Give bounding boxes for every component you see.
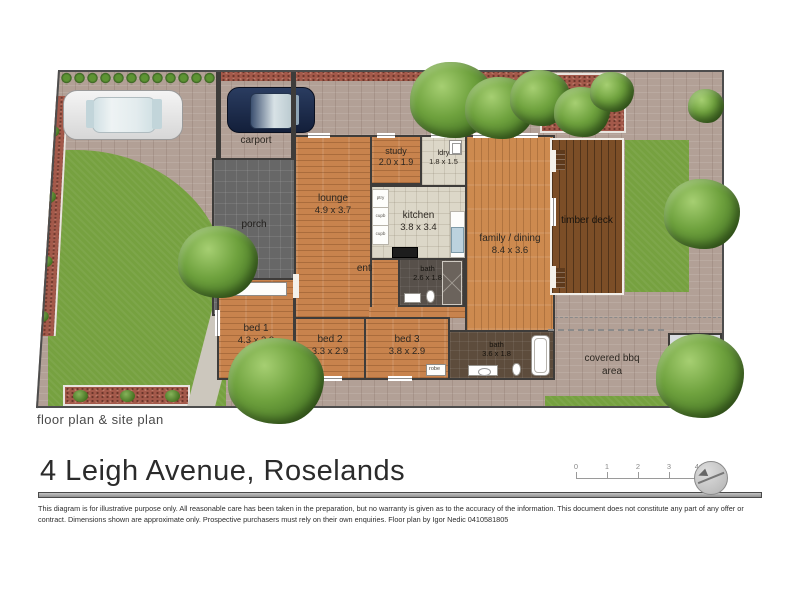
window-icon <box>431 133 447 138</box>
window-icon <box>308 133 330 138</box>
car-driveway <box>63 90 183 140</box>
bathtub-icon <box>531 335 550 376</box>
room-bed2: bed 2 3.3 x 2.9 robe <box>294 317 366 380</box>
window-icon <box>473 133 499 138</box>
basin-icon <box>404 293 421 303</box>
plan-caption: floor plan & site plan <box>37 412 164 427</box>
boundary-top <box>58 70 724 72</box>
room-family-dining: family / dining 8.4 x 3.6 <box>465 135 555 332</box>
robe-cabinet: robe <box>426 364 446 376</box>
garden-bed-top-right <box>540 73 626 133</box>
car-windshield <box>152 99 162 129</box>
rear-lawn <box>625 140 689 292</box>
room-label: bed 3 3.8 x 2.9 <box>366 333 448 358</box>
window-icon <box>236 376 262 381</box>
scale-tick <box>576 472 577 479</box>
window-icon <box>377 133 395 138</box>
cooktop-icon <box>392 247 418 258</box>
room-store-workshop: store/ workshop 2.8 x 2.2 <box>668 333 722 398</box>
room-label: store/ workshop 2.8 x 2.2 <box>670 351 720 378</box>
garden-bed-bottom <box>63 385 190 406</box>
window-icon <box>551 198 556 226</box>
bbq-boundary-dash <box>548 329 664 331</box>
hedge-row <box>60 72 218 85</box>
room-label: porch <box>214 218 294 231</box>
pantry-label: ptry <box>373 190 388 208</box>
car-rear-window <box>86 100 94 128</box>
shrub-icon <box>73 390 88 402</box>
bbq-area: covered bbq area <box>552 352 672 378</box>
scale-bar: 0 1 2 3 4m <box>576 462 704 482</box>
room-study: study 2.0 x 1.9 <box>370 135 422 185</box>
room-label: study 2.0 x 1.9 <box>372 146 420 169</box>
window-icon <box>514 133 538 138</box>
shower-icon <box>442 261 462 305</box>
room-laundry: ldry 1.8 x 1.5 <box>420 135 467 187</box>
vanity-icon <box>468 365 498 376</box>
page-title: 4 Leigh Avenue, Roselands <box>40 455 405 488</box>
toilet-icon <box>426 290 435 303</box>
cupboard-label: cupb <box>373 226 388 243</box>
window-icon <box>320 376 342 381</box>
north-compass-icon <box>694 461 728 495</box>
car-carport <box>227 87 315 133</box>
title-divider-bar <box>38 492 762 498</box>
laundry-tub-icon <box>449 140 462 155</box>
room-label: carport <box>221 134 291 147</box>
front-door-gap <box>293 274 299 298</box>
room-bath2: bath 3.6 x 1.8 <box>448 330 555 380</box>
scale-label: 1 <box>605 462 609 471</box>
robe-cabinet: robe <box>298 364 318 376</box>
room-label: bed 2 3.3 x 2.9 <box>296 333 364 358</box>
shrub-icon <box>165 390 180 402</box>
boundary-bottom <box>36 406 724 408</box>
scale-line <box>576 478 704 479</box>
car-roof <box>250 93 294 129</box>
room-label: family / dining 8.4 x 3.6 <box>467 232 553 257</box>
deck-door-gap <box>551 150 556 172</box>
robe-cabinet: robe <box>221 282 287 296</box>
floor-plan-page: carport porch lounge 4.9 x 3.7 entry stu… <box>0 0 800 600</box>
room-lounge-entry: lounge 4.9 x 3.7 entry <box>294 135 372 319</box>
cupboard-label: cupb <box>373 208 388 226</box>
scale-label: 0 <box>574 462 578 471</box>
scale-label: 2 <box>636 462 640 471</box>
deck-label: timber deck <box>552 214 622 227</box>
timber-deck: timber deck <box>550 138 624 295</box>
scale-tick <box>638 472 639 479</box>
deck-door-gap <box>551 266 556 288</box>
bbq-label: covered bbq area <box>552 352 672 378</box>
room-bed3: bed 3 3.8 x 2.9 robe <box>364 317 450 380</box>
shrub-icon <box>120 390 135 402</box>
scale-tick <box>607 472 608 479</box>
room-kitchen: kitchen 3.8 x 3.4 ptry cupb cupb <box>370 185 467 260</box>
scale-tick <box>669 472 670 479</box>
room-label: bed 1 4.3 x 3.3 <box>219 322 293 347</box>
room-label: lounge 4.9 x 3.7 <box>296 192 370 217</box>
site-plan: carport porch lounge 4.9 x 3.7 entry stu… <box>36 70 724 408</box>
room-bed1: robe bed 1 4.3 x 3.3 <box>217 278 295 380</box>
toilet-icon <box>512 363 521 376</box>
disclaimer-text: This diagram is for illustrative purpose… <box>38 504 765 526</box>
rear-boundary-dash <box>555 317 721 318</box>
boundary-right <box>722 70 724 408</box>
kitchen-bench: ptry cupb cupb <box>372 189 389 245</box>
scale-label: 3 <box>667 462 671 471</box>
fridge-icon <box>451 227 464 253</box>
window-icon <box>388 376 412 381</box>
window-icon <box>215 310 220 336</box>
room-bath1: bath 2.6 x 1.8 <box>398 258 465 307</box>
car-roof <box>92 97 156 133</box>
room-carport: carport <box>221 134 291 150</box>
